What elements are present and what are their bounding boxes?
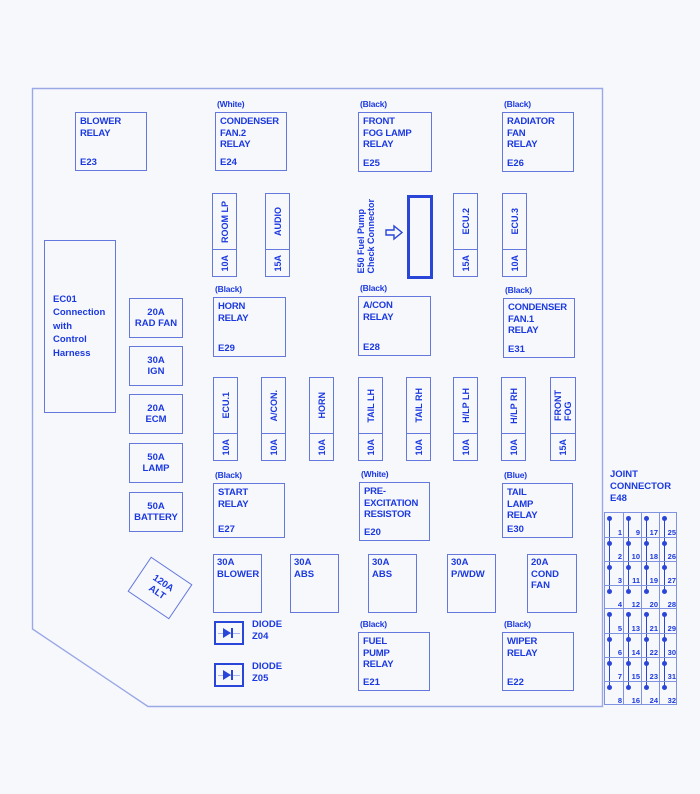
joint-cell: 6	[605, 633, 623, 657]
fuse-amp-area: 10A	[359, 433, 382, 460]
pin-link-icon	[609, 682, 610, 688]
pin-link-icon	[646, 538, 647, 544]
left-fuse-label: ECM	[145, 414, 166, 426]
fuse-label: ECU.2	[461, 208, 471, 235]
cartridge-fuse: TAIL RH10A	[406, 377, 431, 461]
relay-label: CONDENSER FAN.2 RELAY	[220, 116, 284, 151]
joint-cell: 29	[659, 609, 677, 633]
relay-label: RADIATOR FAN RELAY	[507, 116, 571, 151]
fuse-amp-area: 15A	[551, 433, 575, 460]
joint-cell: 18	[641, 537, 659, 561]
relay-color-label: (Black)	[505, 286, 532, 295]
relay-color-label: (Black)	[360, 100, 387, 109]
joint-cell: 16	[623, 681, 641, 705]
pin-link-icon	[628, 544, 629, 561]
relay-code: E20	[364, 528, 427, 538]
relay-label: CONDENSER FAN.1 RELAY	[508, 302, 572, 337]
pin-link-icon	[609, 640, 610, 657]
left-fuse: 50ALAMP	[129, 443, 183, 483]
diode-symbol-icon	[221, 626, 238, 645]
fuse-label-area: ECU.1	[214, 378, 237, 433]
joint-cell: 30	[659, 633, 677, 657]
relay-label: FUEL PUMP RELAY	[363, 636, 427, 671]
amp-fuse-amp: 30A	[294, 557, 335, 569]
left-fuse-label: IGN	[148, 366, 165, 378]
relay-box: FUEL PUMP RELAYE21	[358, 632, 430, 691]
relay-color-label: (Black)	[215, 471, 242, 480]
cartridge-fuse: H/LP RH10A	[501, 377, 526, 461]
relay-code: E21	[363, 678, 427, 688]
fuse-amp-area: 10A	[502, 433, 525, 460]
left-fuse-amp: 30A	[147, 355, 164, 367]
joint-cell: 21	[641, 609, 659, 633]
joint-cell-number: 29	[668, 624, 676, 633]
pin-link-icon	[664, 634, 665, 640]
pin-link-icon	[609, 664, 610, 681]
amp-fuse-label: ABS	[372, 569, 413, 581]
joint-cell: 15	[623, 657, 641, 681]
relay-box: WIPER RELAYE22	[502, 632, 574, 691]
pin-link-icon	[609, 519, 610, 537]
left-fuse-amp: 50A	[147, 452, 164, 464]
pin-link-icon	[628, 640, 629, 657]
pin-link-icon	[646, 615, 647, 633]
pin-link-icon	[646, 682, 647, 688]
fuse-label: H/LP LH	[461, 388, 471, 423]
relay-code: E22	[507, 678, 571, 688]
joint-cell: 7	[605, 657, 623, 681]
fuse-label: ROOM LP	[220, 201, 230, 243]
fuse-label: FRONT FOG	[553, 390, 573, 421]
joint-cell-number: 13	[632, 624, 640, 633]
pin-link-icon	[646, 664, 647, 681]
fuse-label: HORN	[317, 392, 327, 419]
joint-cell-number: 5	[618, 624, 622, 633]
diode-box	[214, 663, 244, 687]
fuse-amp: 10A	[510, 255, 520, 272]
fuse-amp: 10A	[414, 439, 424, 456]
e50-connector-box	[407, 195, 433, 279]
amp-fuse-amp: 20A	[531, 557, 573, 569]
left-fuse: 20ARAD FAN	[129, 298, 183, 338]
cartridge-fuse: AUDIO15A	[265, 193, 290, 277]
pin-link-icon	[664, 664, 665, 681]
relay-box: RADIATOR FAN RELAYE26	[502, 112, 574, 172]
relay-box: A/CON RELAYE28	[358, 296, 431, 356]
joint-cell-number: 27	[668, 576, 676, 585]
pin-link-icon	[628, 538, 629, 544]
joint-cell-number: 19	[650, 576, 658, 585]
joint-cell: 11	[623, 561, 641, 585]
fuse-amp: 15A	[461, 255, 471, 272]
relay-code: E30	[507, 525, 570, 535]
fuse-amp-area: 10A	[503, 249, 526, 276]
joint-cell: 32	[659, 681, 677, 705]
amp-fuse: 30ABLOWER	[213, 554, 262, 613]
pin-link-icon	[646, 568, 647, 585]
relay-color-label: (White)	[361, 470, 388, 479]
relay-color-label: (Black)	[504, 100, 531, 109]
fuse-amp-area: 10A	[213, 249, 236, 276]
pin-link-icon	[664, 682, 665, 688]
cartridge-fuse: ECU.310A	[502, 193, 527, 277]
joint-cell-number: 32	[668, 696, 676, 705]
left-fuse: 30AIGN	[129, 346, 183, 386]
joint-cell: 13	[623, 609, 641, 633]
relay-code: E25	[363, 159, 429, 169]
pin-link-icon	[628, 634, 629, 640]
joint-cell-number: 24	[650, 696, 658, 705]
relay-box: PRE- EXCITATION RESISTORE20	[359, 482, 430, 541]
joint-cell: 22	[641, 633, 659, 657]
pin-link-icon	[646, 544, 647, 561]
fuse-amp: 10A	[317, 439, 327, 456]
relay-box: FRONT FOG LAMP RELAYE25	[358, 112, 432, 172]
fuse-label: TAIL LH	[366, 389, 376, 423]
pin-link-icon	[664, 658, 665, 664]
left-fuse-label: BATTERY	[134, 512, 178, 524]
left-fuse-amp: 50A	[147, 501, 164, 513]
pin-link-icon	[664, 562, 665, 568]
cartridge-fuse: HORN10A	[309, 377, 334, 461]
relay-code: E31	[508, 345, 572, 355]
amp-fuse-amp: 30A	[451, 557, 492, 569]
ec01-label: EC01 Connection with Control Harness	[53, 293, 105, 361]
pin-link-icon	[646, 634, 647, 640]
fuse-amp: 10A	[461, 439, 471, 456]
fuse-box-diagram: EC01 Connection with Control Harness E50…	[0, 0, 700, 794]
fuse-label: TAIL RH	[414, 388, 424, 423]
relay-code: E26	[507, 159, 571, 169]
joint-cell-number: 1	[618, 528, 622, 537]
relay-code: E24	[220, 158, 284, 168]
left-fuse-label: LAMP	[143, 463, 170, 475]
pin-link-icon	[628, 586, 629, 592]
amp-fuse-label: P/WDW	[451, 569, 492, 581]
relay-code: E27	[218, 525, 282, 535]
cartridge-fuse: FRONT FOG15A	[550, 377, 576, 461]
joint-cell: 1	[605, 513, 623, 537]
relay-code: E23	[80, 158, 144, 168]
joint-cell-number: 15	[632, 672, 640, 681]
pin-link-icon	[609, 544, 610, 561]
fuse-label-area: TAIL LH	[359, 378, 382, 433]
fuse-amp-area: 10A	[310, 433, 333, 460]
diode-label: DIODEZ04	[252, 619, 282, 643]
pin-link-icon	[609, 538, 610, 544]
relay-color-label: (Blue)	[504, 471, 527, 480]
relay-label: TAIL LAMP RELAY	[507, 487, 570, 522]
joint-cell-number: 30	[668, 648, 676, 657]
relay-box: BLOWER RELAYE23	[75, 112, 147, 171]
joint-cell-number: 21	[650, 624, 658, 633]
relay-box: HORN RELAYE29	[213, 297, 286, 357]
fuse-amp: 10A	[220, 255, 230, 272]
joint-cell-number: 22	[650, 648, 658, 657]
amp-fuse-amp: 30A	[217, 557, 258, 569]
fuse-label-area: H/LP LH	[454, 378, 477, 433]
fuse-amp: 10A	[366, 439, 376, 456]
pin-link-icon	[664, 544, 665, 561]
pin-link-icon	[664, 586, 665, 592]
fuse-amp-area: 10A	[214, 433, 237, 460]
fuse-label: ECU.1	[221, 392, 231, 419]
ec01-connector: EC01 Connection with Control Harness	[44, 240, 116, 413]
fuse-label-area: ROOM LP	[213, 194, 236, 249]
diode-code: Z04	[252, 631, 282, 643]
pin-link-icon	[609, 634, 610, 640]
fuse-amp-area: 15A	[266, 249, 289, 276]
fuse-label-area: TAIL RH	[407, 378, 430, 433]
cartridge-fuse: A/CON.10A	[261, 377, 286, 461]
relay-label: PRE- EXCITATION RESISTOR	[364, 486, 427, 521]
joint-connector-block: 5132129614223071523318162432	[604, 608, 677, 705]
relay-color-label: (White)	[217, 100, 244, 109]
fuse-amp: 15A	[558, 439, 568, 456]
pin-link-icon	[664, 568, 665, 585]
joint-cell-number: 26	[668, 552, 676, 561]
joint-cell: 19	[641, 561, 659, 585]
cartridge-fuse: H/LP LH10A	[453, 377, 478, 461]
relay-label: A/CON RELAY	[363, 300, 428, 323]
joint-cell-number: 11	[632, 576, 640, 585]
diode-label: DIODEZ05	[252, 661, 282, 685]
pin-link-icon	[609, 586, 610, 592]
left-fuse-amp: 20A	[147, 307, 164, 319]
joint-cell: 8	[605, 681, 623, 705]
diode-name: DIODE	[252, 661, 282, 673]
joint-cell: 4	[605, 585, 623, 609]
amp-fuse: 30AP/WDW	[447, 554, 496, 613]
left-fuse: 50ABATTERY	[129, 492, 183, 532]
relay-code: E28	[363, 343, 428, 353]
fuse-amp: 10A	[509, 439, 519, 456]
pin-link-icon	[646, 640, 647, 657]
fuse-amp: 10A	[269, 439, 279, 456]
fuse-label: ECU.3	[510, 208, 520, 235]
joint-cell-number: 9	[636, 528, 640, 537]
pin-link-icon	[628, 615, 629, 633]
pin-link-icon	[609, 658, 610, 664]
amp-fuse: 30AABS	[290, 554, 339, 613]
joint-cell: 27	[659, 561, 677, 585]
pin-link-icon	[646, 519, 647, 537]
fuse-amp: 15A	[273, 255, 283, 272]
cartridge-fuse: TAIL LH10A	[358, 377, 383, 461]
left-fuse-label: RAD FAN	[135, 318, 177, 330]
relay-box: START RELAYE27	[213, 483, 285, 538]
relay-label: BLOWER RELAY	[80, 116, 144, 139]
joint-cell: 26	[659, 537, 677, 561]
e50-check-connector-label: E50 Fuel Pump Check Connector	[356, 194, 376, 279]
fuse-label: AUDIO	[273, 207, 283, 236]
fuse-amp-area: 10A	[407, 433, 430, 460]
relay-label: HORN RELAY	[218, 301, 283, 324]
joint-cell: 23	[641, 657, 659, 681]
pin-link-icon	[664, 538, 665, 544]
amp-fuse-label: COND FAN	[531, 569, 573, 592]
left-fuse-amp: 20A	[147, 403, 164, 415]
relay-color-label: (Black)	[360, 620, 387, 629]
relay-color-label: (Black)	[215, 285, 242, 294]
pin-link-icon	[628, 519, 629, 537]
pin-link-icon	[609, 562, 610, 568]
joint-cell: 14	[623, 633, 641, 657]
joint-cell-number: 17	[650, 528, 658, 537]
joint-cell: 12	[623, 585, 641, 609]
amp-fuse-amp: 30A	[372, 557, 413, 569]
joint-cell-number: 23	[650, 672, 658, 681]
fuse-amp: 10A	[221, 439, 231, 456]
relay-color-label: (Black)	[360, 284, 387, 293]
fuse-label-area: ECU.2	[454, 194, 477, 249]
joint-cell: 31	[659, 657, 677, 681]
fuse-label-area: HORN	[310, 378, 333, 433]
pin-link-icon	[646, 562, 647, 568]
amp-fuse: 30AABS	[368, 554, 417, 613]
fuse-label-area: AUDIO	[266, 194, 289, 249]
pin-link-icon	[609, 615, 610, 633]
diode-name: DIODE	[252, 619, 282, 631]
fuse-label-area: ECU.3	[503, 194, 526, 249]
relay-label: FRONT FOG LAMP RELAY	[363, 116, 429, 151]
amp-fuse-label: ABS	[294, 569, 335, 581]
joint-cell: 17	[641, 513, 659, 537]
amp-fuse-label: BLOWER	[217, 569, 258, 581]
pin-link-icon	[609, 568, 610, 585]
cartridge-fuse: ECU.215A	[453, 193, 478, 277]
joint-cell-number: 2	[618, 552, 622, 561]
joint-cell-number: 14	[632, 648, 640, 657]
diode-code: Z05	[252, 673, 282, 685]
joint-cell-number: 10	[632, 552, 640, 561]
cartridge-fuse: ROOM LP10A	[212, 193, 237, 277]
pin-link-icon	[628, 658, 629, 664]
joint-cell: 3	[605, 561, 623, 585]
fuse-label-area: FRONT FOG	[551, 378, 575, 433]
fuse-label-area: A/CON.	[262, 378, 285, 433]
joint-cell-number: 31	[668, 672, 676, 681]
relay-label: WIPER RELAY	[507, 636, 571, 659]
amp-fuse: 20ACOND FAN	[527, 554, 577, 613]
joint-cell-number: 7	[618, 672, 622, 681]
relay-box: CONDENSER FAN.1 RELAYE31	[503, 298, 575, 358]
joint-cell-number: 16	[632, 696, 640, 705]
e50-arrow-icon	[385, 224, 404, 241]
joint-cell-number: 25	[668, 528, 676, 537]
joint-cell: 20	[641, 585, 659, 609]
relay-box: CONDENSER FAN.2 RELAYE24	[215, 112, 287, 171]
pin-link-icon	[664, 640, 665, 657]
joint-connector-title: JOINT CONNECTOR E48	[610, 469, 671, 505]
pin-link-icon	[628, 664, 629, 681]
fuse-label-area: H/LP RH	[502, 378, 525, 433]
joint-cell-number: 3	[618, 576, 622, 585]
relay-box: TAIL LAMP RELAYE30	[502, 483, 573, 538]
pin-link-icon	[628, 562, 629, 568]
pin-link-icon	[628, 568, 629, 585]
joint-cell: 2	[605, 537, 623, 561]
relay-label: START RELAY	[218, 487, 282, 510]
pin-link-icon	[664, 615, 665, 633]
pin-link-icon	[664, 519, 665, 537]
left-fuse: 20AECM	[129, 394, 183, 434]
joint-cell-number: 6	[618, 648, 622, 657]
fuse-label: H/LP RH	[509, 388, 519, 424]
relay-code: E29	[218, 344, 283, 354]
joint-cell-number: 8	[618, 696, 622, 705]
joint-cell-number: 18	[650, 552, 658, 561]
fuse-amp-area: 10A	[454, 433, 477, 460]
fuse-amp-area: 10A	[262, 433, 285, 460]
relay-color-label: (Black)	[504, 620, 531, 629]
joint-cell: 10	[623, 537, 641, 561]
joint-connector-block: 191725210182631119274122028	[604, 512, 677, 609]
cartridge-fuse: ECU.110A	[213, 377, 238, 461]
pin-link-icon	[646, 658, 647, 664]
joint-cell: 24	[641, 681, 659, 705]
fuse-amp-area: 15A	[454, 249, 477, 276]
joint-cell: 25	[659, 513, 677, 537]
pin-link-icon	[646, 586, 647, 592]
fuse-label: A/CON.	[269, 390, 279, 422]
joint-cell: 5	[605, 609, 623, 633]
joint-cell: 28	[659, 585, 677, 609]
diode-box	[214, 621, 244, 645]
pin-link-icon	[628, 682, 629, 688]
joint-cell: 9	[623, 513, 641, 537]
diode-symbol-icon	[221, 668, 238, 687]
